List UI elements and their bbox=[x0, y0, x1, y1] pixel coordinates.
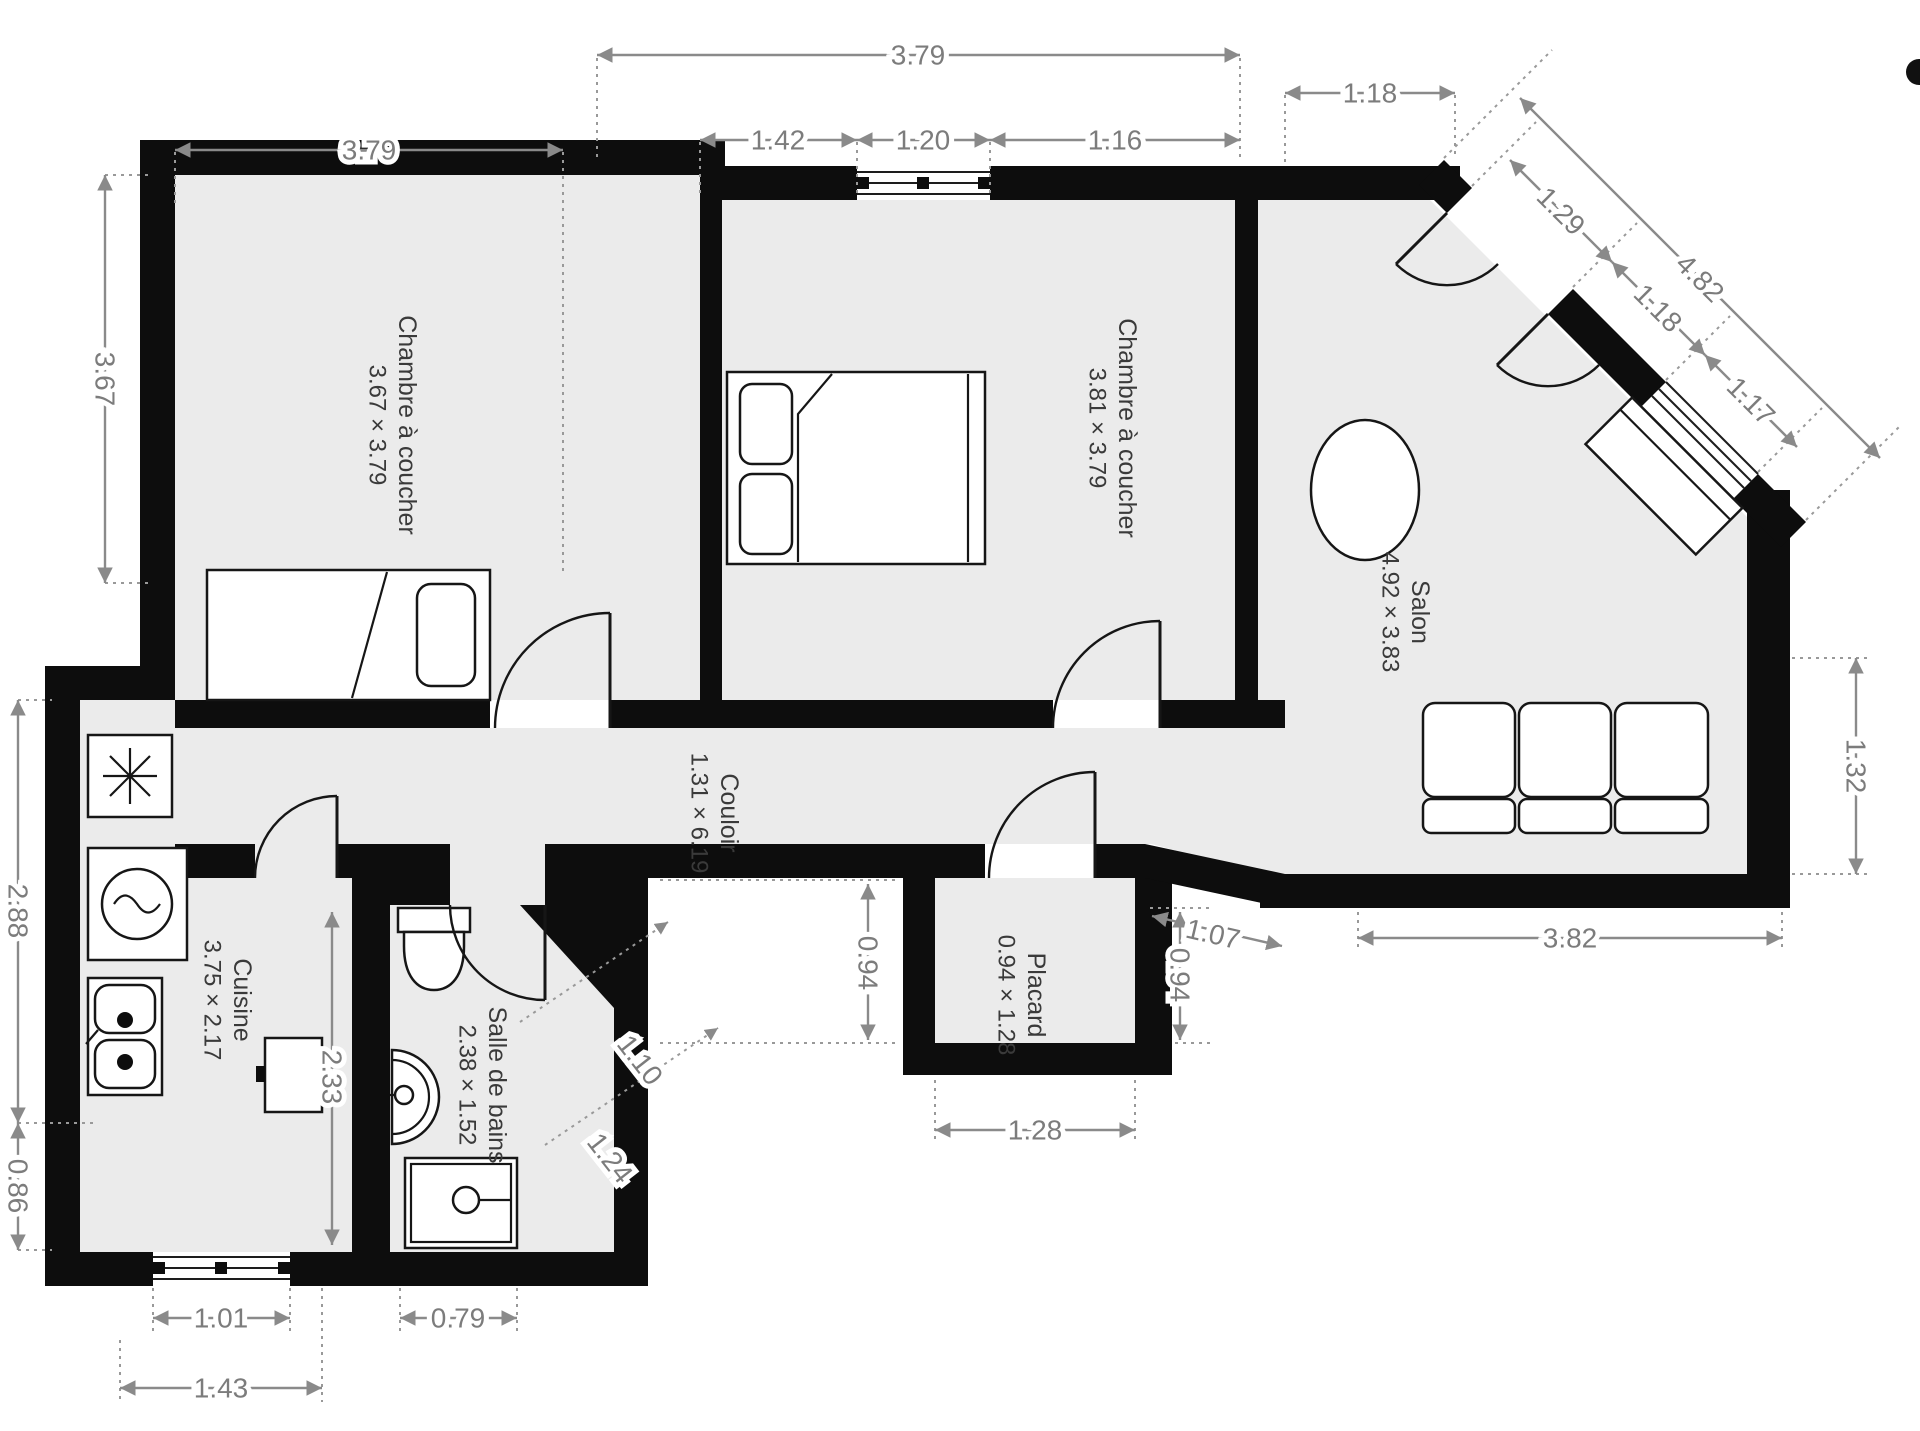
wall-bedroom2-top-right bbox=[990, 166, 1460, 200]
wall-west bbox=[140, 140, 175, 700]
kitchen-sink bbox=[86, 978, 162, 1095]
room-label-couloir-name: Couloir bbox=[715, 773, 743, 852]
room-label-bedroom1-name: Chambre à coucher bbox=[393, 315, 421, 535]
floor-plan-page: 3.79 3.79 1.42 1.20 1.16 1.18 4.82 1.29 … bbox=[0, 0, 1920, 1431]
dim-bedroom2-seg-left: 1.42 bbox=[751, 125, 806, 156]
wall-kitchen-south-left bbox=[45, 1252, 153, 1286]
double-bed bbox=[727, 372, 985, 564]
dim-kitchen-window: 1.01 bbox=[194, 1303, 249, 1334]
dim-bedroom1-height: 3.67 bbox=[90, 352, 121, 407]
room-label-placard-dims: 0.94 × 1.28 bbox=[993, 935, 1020, 1056]
dim-hall-right-gap: 0.94 bbox=[1165, 948, 1196, 1003]
room-label-bedroom1-dims: 3.67 × 3.79 bbox=[364, 365, 391, 486]
wall-bedroom2-top-left bbox=[700, 166, 857, 200]
dim-salon-bottom: 3.82 bbox=[1543, 923, 1598, 954]
dim-kitchen-bottom: 1.43 bbox=[194, 1373, 249, 1404]
room-label-bathroom-name: Salle de bains bbox=[483, 1006, 511, 1163]
dim-hall-left-gap: 0.94 bbox=[853, 936, 884, 991]
door-gap-bathroom bbox=[450, 844, 545, 905]
room-label-cuisine-dims: 3.75 × 2.17 bbox=[199, 940, 226, 1061]
wall-kitchen-west bbox=[45, 666, 80, 1286]
round-table bbox=[1311, 420, 1419, 560]
dim-placard-width: 1.28 bbox=[1008, 1115, 1063, 1146]
wall-salon-bottom bbox=[1260, 874, 1790, 908]
room-label-cuisine-name: Cuisine bbox=[228, 958, 256, 1041]
dim-kitchen-left-lower: 0.86 bbox=[3, 1159, 34, 1214]
dim-bedroom1-width: 3.79 bbox=[342, 135, 397, 166]
room-label-bedroom2-dims: 3.81 × 3.79 bbox=[1084, 368, 1111, 489]
wall-hall-top-3 bbox=[1160, 700, 1285, 728]
wall-partition-bedroom2-salon bbox=[1235, 200, 1258, 728]
dim-salon-right: 1.32 bbox=[1841, 739, 1872, 794]
room-label-placard-name: Placard bbox=[1022, 953, 1050, 1038]
room-label-couloir-dims: 1.31 × 6.19 bbox=[686, 753, 713, 874]
room-label-bathroom-dims: 2.38 × 1.52 bbox=[454, 1025, 481, 1146]
dim-salon-top: 1.18 bbox=[1343, 78, 1398, 109]
kitchen-window bbox=[153, 1257, 290, 1279]
dim-bath-shower: 0.79 bbox=[431, 1303, 486, 1334]
room-label-salon-dims: 4.92 × 3.83 bbox=[1377, 552, 1404, 673]
dim-bedroom2-width: 3.79 bbox=[891, 40, 946, 71]
wall-hall-top-2 bbox=[610, 700, 1053, 728]
snowflake-icon bbox=[103, 748, 157, 804]
wall-bedroom1-top bbox=[140, 140, 725, 175]
dim-kitchen-inner: 2.33 bbox=[317, 1050, 348, 1105]
dim-kitchen-left-upper: 2.88 bbox=[3, 884, 34, 939]
single-bed bbox=[207, 570, 490, 700]
room-label-salon-name: Salon bbox=[1406, 580, 1434, 644]
wall-partition-bedrooms bbox=[700, 175, 722, 700]
sofa bbox=[1423, 703, 1708, 833]
bedroom2-window bbox=[857, 172, 990, 194]
shower bbox=[405, 1158, 517, 1248]
room-label-bedroom2-name: Chambre à coucher bbox=[1113, 318, 1141, 538]
dim-bedroom2-window: 1.20 bbox=[896, 125, 951, 156]
washing-machine bbox=[88, 848, 187, 960]
floor-plan-svg: 3.79 3.79 1.42 1.20 1.16 1.18 4.82 1.29 … bbox=[0, 0, 1920, 1431]
fridge bbox=[88, 735, 172, 817]
dishwasher bbox=[256, 1038, 322, 1112]
wall-hall-top-1 bbox=[175, 700, 490, 728]
wall-salon-right bbox=[1747, 490, 1790, 908]
dim-bedroom2-seg-right: 1.16 bbox=[1088, 125, 1143, 156]
screen-edge-artifact bbox=[1906, 59, 1920, 85]
wall-hall-bottom-4 bbox=[1095, 844, 1145, 878]
